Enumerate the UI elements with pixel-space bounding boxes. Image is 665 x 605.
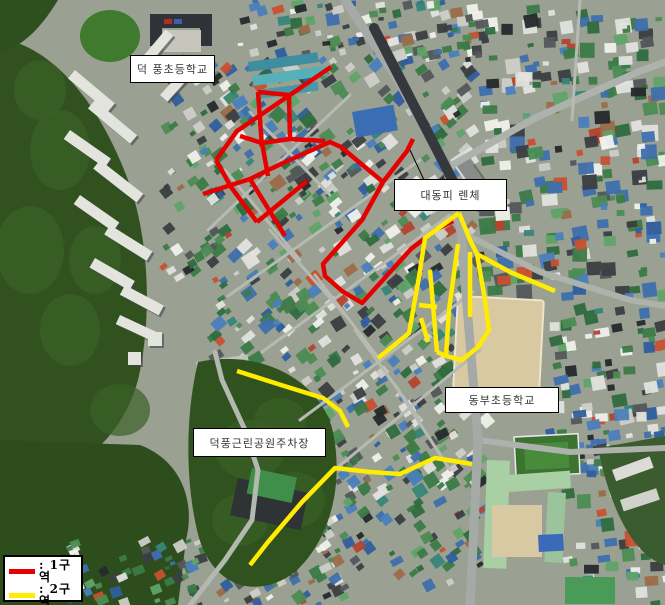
zone1-label: : 1구역	[39, 559, 77, 583]
zone2-route-line	[459, 213, 555, 291]
legend: : 1구역 : 2구역	[3, 555, 83, 602]
zone1-route-line	[258, 92, 289, 95]
zone2-route-line	[446, 244, 458, 356]
zone1-route-line	[258, 92, 262, 147]
zone1-route-line	[289, 95, 290, 139]
zone1-route-line	[216, 160, 257, 222]
map-label-deokpung-park-parking: 덕풍근린공원주차장	[193, 428, 326, 457]
zone1-route-line	[250, 179, 285, 236]
map-label-dongbu-elementary: 동부초등학교	[445, 387, 559, 413]
zone2-route-line	[250, 458, 472, 565]
zone2-route-line	[419, 305, 437, 307]
zone1-route-line	[383, 139, 413, 182]
map-label-deokpung-elementary: 덕 풍초등학교	[130, 55, 215, 83]
zone1-route-line	[240, 136, 325, 143]
zone1-route-line	[216, 67, 331, 160]
zone2-label: : 2구역	[39, 583, 77, 605]
legend-row-zone2: : 2구역	[9, 583, 77, 605]
zone1-color-swatch	[9, 569, 35, 574]
aerial-map: 덕 풍초등학교 대동피 렌체 동부초등학교 덕풍근린공원주차장 : 1구역 : …	[0, 0, 665, 605]
zone2-color-swatch	[9, 593, 35, 598]
zone2-route-line	[430, 270, 437, 352]
label-pointer-line	[410, 150, 424, 180]
zone2-route-line	[237, 371, 348, 427]
zone-overlay	[0, 0, 665, 605]
legend-row-zone1: : 1구역	[9, 559, 77, 583]
map-label-daedong-firenze: 대동피 렌체	[394, 179, 507, 211]
zone2-route-line	[421, 318, 428, 342]
